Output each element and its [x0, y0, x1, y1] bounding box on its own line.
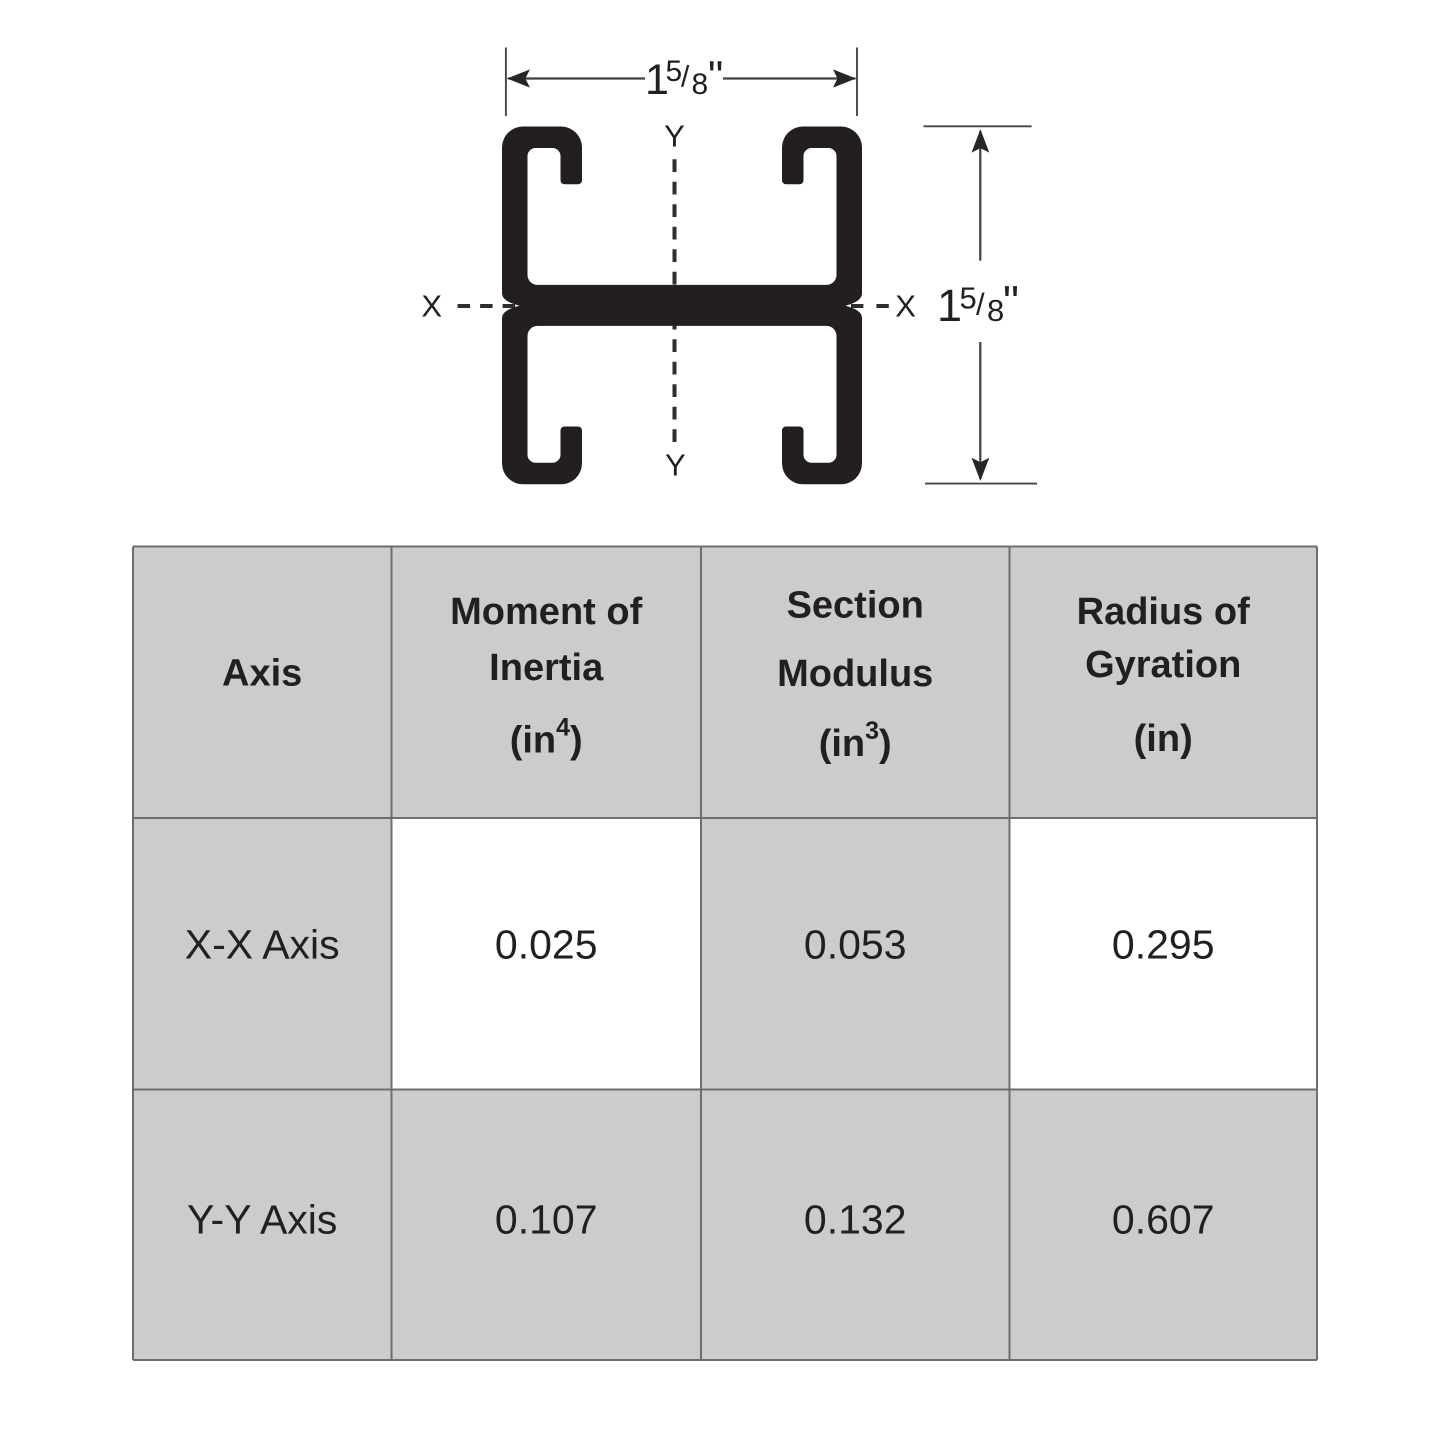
svg-text:X: X: [895, 288, 916, 323]
svg-text:0.053: 0.053: [804, 922, 907, 968]
svg-text:(in): (in): [1134, 718, 1193, 760]
svg-text:Inertia: Inertia: [489, 647, 604, 689]
svg-text:8: 8: [692, 68, 709, 101]
svg-text:": ": [708, 53, 723, 101]
svg-text:/: /: [976, 287, 985, 322]
svg-text:": ": [1003, 277, 1019, 328]
svg-text:Axis: Axis: [222, 653, 302, 695]
svg-text:8: 8: [987, 293, 1004, 328]
svg-text:X-X Axis: X-X Axis: [185, 922, 340, 968]
svg-text:Section: Section: [787, 585, 924, 627]
svg-text:5: 5: [666, 55, 683, 88]
svg-text:0.295: 0.295: [1112, 922, 1215, 968]
svg-text:1: 1: [937, 280, 962, 331]
svg-text:5: 5: [960, 281, 977, 316]
svg-text:Y: Y: [664, 119, 685, 154]
svg-text:Y: Y: [665, 447, 686, 482]
svg-text:0.607: 0.607: [1112, 1197, 1215, 1243]
svg-text:0.132: 0.132: [804, 1197, 907, 1243]
svg-text:(in3): (in3): [819, 717, 892, 765]
svg-text:Modulus: Modulus: [777, 653, 933, 695]
svg-text:/: /: [681, 61, 690, 94]
svg-text:Y-Y Axis: Y-Y Axis: [187, 1197, 337, 1243]
svg-text:0.025: 0.025: [495, 922, 598, 968]
svg-text:Radius of: Radius of: [1077, 591, 1250, 633]
svg-text:X: X: [421, 289, 442, 324]
svg-text:Moment of: Moment of: [450, 591, 642, 633]
svg-text:Gyration: Gyration: [1085, 644, 1241, 686]
svg-text:(in4): (in4): [510, 714, 583, 762]
svg-text:0.107: 0.107: [495, 1197, 598, 1243]
